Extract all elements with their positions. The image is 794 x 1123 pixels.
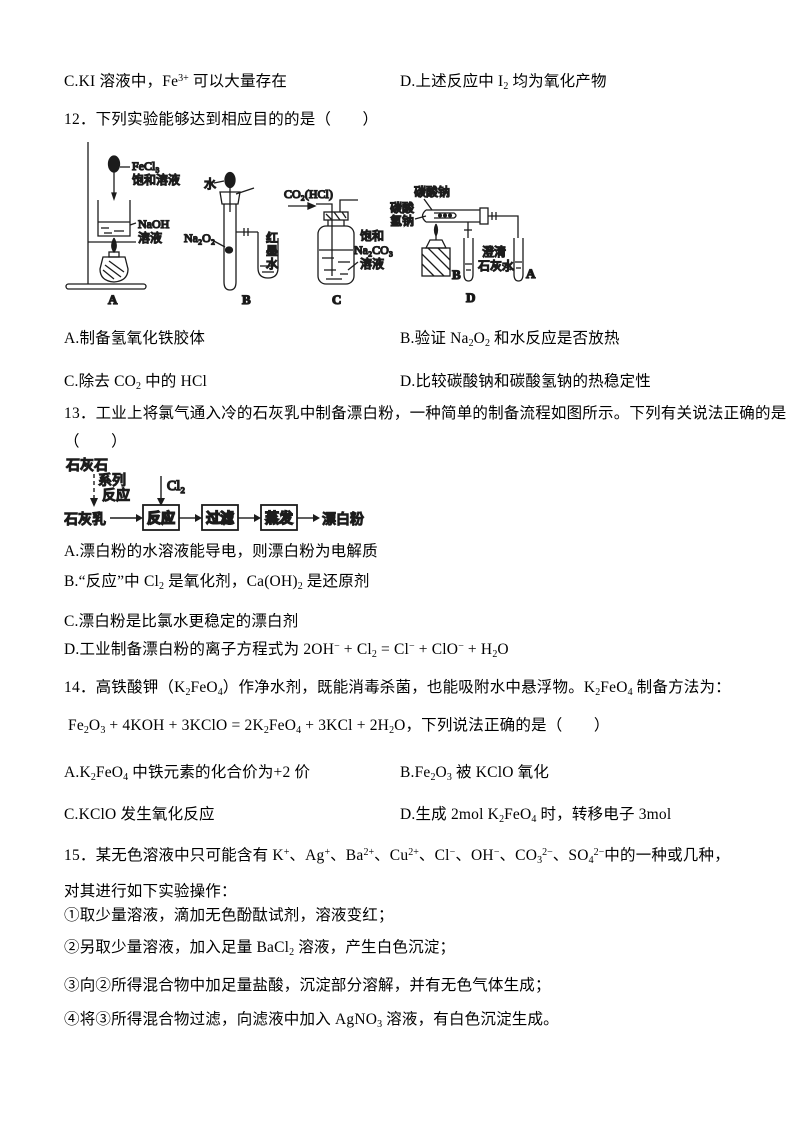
label-red-ink-2: 墨 bbox=[266, 244, 278, 258]
flow-box-evaporate-label: 蒸发 bbox=[265, 510, 294, 527]
label-naoh: NaOH bbox=[138, 217, 170, 231]
flow-lime-milk: 石灰乳 bbox=[64, 512, 106, 528]
q12-option-d: D.比较碳酸钠和碳酸氢钠的热稳定性 bbox=[400, 372, 651, 392]
limewater-tube-b bbox=[464, 238, 473, 281]
label-water: 水 bbox=[204, 177, 216, 191]
label-na2co3: Na₂CO₃ bbox=[354, 243, 393, 257]
q12-stem: 12．下列实验能够达到相应目的的是（ ） bbox=[64, 110, 378, 130]
stopper bbox=[480, 208, 488, 224]
label-red-ink-3: 水 bbox=[266, 257, 278, 271]
apparatus-d: 碳酸钠 碳酸 氢钠 bbox=[390, 184, 536, 305]
flow-series-1: 系列 bbox=[98, 473, 126, 489]
flow-limestone: 石灰石 bbox=[66, 458, 108, 474]
label-co2-hcl: CO₂(HCl) bbox=[284, 187, 333, 201]
q13-option-a: A.漂白粉的水溶液能导电，则漂白粉为电解质 bbox=[64, 542, 378, 562]
label-fecl3: FeCl₃ bbox=[132, 159, 160, 173]
dropper-bulb-icon bbox=[225, 173, 235, 188]
q15-step-3: ③向②所得混合物中加足量盐酸，沉淀部分溶解，并有无色气体生成； bbox=[64, 976, 551, 996]
q13-option-c: C.漂白粉是比氯水更稳定的漂白剂 bbox=[64, 612, 298, 632]
tube-a-tag: A bbox=[526, 266, 536, 281]
limewater-tube-a bbox=[514, 238, 523, 281]
label-nahco3-1: 碳酸 bbox=[390, 200, 414, 215]
label-red-ink-1: 红 bbox=[266, 230, 278, 245]
alcohol-lamp-icon bbox=[100, 238, 128, 282]
flow-product: 漂白粉 bbox=[322, 512, 364, 528]
label-limewater-2: 石灰水 bbox=[478, 259, 514, 273]
q14-equation: Fe2O3 + 4KOH + 3KClO = 2K2FeO4 + 3KCl + … bbox=[68, 716, 610, 737]
label-limewater-1: 澄清 bbox=[482, 244, 506, 259]
exam-paper-page: C.KI 溶液中，Fe3+ 可以大量存在 D.上述反应中 I2 均为氧化产物 1… bbox=[0, 0, 794, 1123]
apparatus-c: CO₂(HCl) 饱和 Na₂CO₃ 溶液 C bbox=[284, 187, 393, 307]
q14-option-a: A.K2FeO4 中铁元素的化合价为+2 价 bbox=[64, 763, 310, 784]
q13-option-d: D.工业制备漂白粉的离子方程式为 2OH− + Cl2 = Cl− + ClO−… bbox=[64, 640, 509, 661]
q12-option-b: B.验证 Na2O2 和水反应是否放热 bbox=[400, 329, 620, 350]
label-naoh-sol: 溶液 bbox=[138, 230, 162, 245]
q14-option-b: B.Fe2O3 被 KClO 氧化 bbox=[400, 763, 549, 784]
tube-b-tag: B bbox=[452, 267, 461, 282]
q12-option-c: C.除去 CO2 中的 HCl bbox=[64, 372, 207, 393]
q13-flowchart: 石灰石 系列 反应 石灰乳 反应 Cl₂ 过滤 蒸发 漂白粉 bbox=[64, 452, 404, 544]
flow-cl2-label: Cl₂ bbox=[167, 479, 185, 494]
gas-washing-bottle bbox=[318, 226, 354, 284]
q13-stem-line1: 13．工业上将氯气通入冷的石灰乳中制备漂白粉，一种简单的制备流程如图所示。下列有… bbox=[64, 404, 786, 424]
apparatus-b-tag: B bbox=[242, 292, 251, 307]
dropper-bulb-icon bbox=[109, 156, 120, 172]
label-solution: 溶液 bbox=[360, 256, 384, 271]
q11-option-d: D.上述反应中 I2 均为氧化产物 bbox=[400, 72, 607, 93]
flow-box-reaction-label: 反应 bbox=[147, 510, 175, 527]
label-na2o2: Na₂O₂ bbox=[184, 231, 215, 245]
apparatus-a-tag: A bbox=[108, 292, 118, 307]
q15-step-2: ②另取少量溶液，加入足量 BaCl2 溶液，产生白色沉淀； bbox=[64, 938, 455, 959]
q13-stem-line2: （ ） bbox=[64, 432, 127, 452]
q14-stem-line1: 14．高铁酸钾（K2FeO4）作净水剂，既能消毒杀菌，也能吸附水中悬浮物。K2F… bbox=[64, 678, 731, 699]
q13-option-b: B.“反应”中 Cl2 是氧化剂，Ca(OH)2 是还原剂 bbox=[64, 572, 370, 593]
label-na2co3-solid: 碳酸钠 bbox=[414, 184, 450, 199]
q12-apparatus-figure: FeCl₃ 饱和溶液 NaOH 溶液 A bbox=[64, 138, 740, 310]
apparatus-c-tag: C bbox=[332, 292, 341, 307]
q14-option-d: D.生成 2mol K2FeO4 时，转移电子 3mol bbox=[400, 805, 671, 826]
q15-stem-line2: 对其进行如下实验操作： bbox=[64, 882, 237, 902]
apparatus-d-tag: D bbox=[466, 290, 475, 305]
q14-option-c: C.KClO 发生氧化反应 bbox=[64, 805, 215, 825]
label-nahco3-2: 氢钠 bbox=[390, 213, 414, 228]
apparatus-b: 水 Na₂O₂ 红 墨 水 B bbox=[184, 173, 278, 308]
flow-box-filter-label: 过滤 bbox=[206, 510, 234, 527]
alcohol-lamp-icon bbox=[422, 224, 450, 276]
q15-step-1: ①取少量溶液，滴加无色酚酞试剂，溶液变红； bbox=[64, 906, 394, 926]
flow-series-2: 反应 bbox=[102, 487, 130, 504]
q12-option-a: A.制备氢氧化铁胶体 bbox=[64, 329, 205, 349]
q15-stem-line1: 15．某无色溶液中只可能含有 K+、Ag+、Ba2+、Cu2+、Cl−、OH−、… bbox=[64, 846, 730, 867]
label-sat: 饱和 bbox=[360, 228, 384, 243]
label-fecl3-sat: 饱和溶液 bbox=[132, 172, 180, 187]
apparatus-a: FeCl₃ 饱和溶液 NaOH 溶液 A bbox=[66, 142, 180, 307]
q11-option-c: C.KI 溶液中，Fe3+ 可以大量存在 bbox=[64, 72, 287, 92]
q15-step-4: ④将③所得混合物过滤，向滤液中加入 AgNO3 溶液，有白色沉淀生成。 bbox=[64, 1010, 559, 1031]
